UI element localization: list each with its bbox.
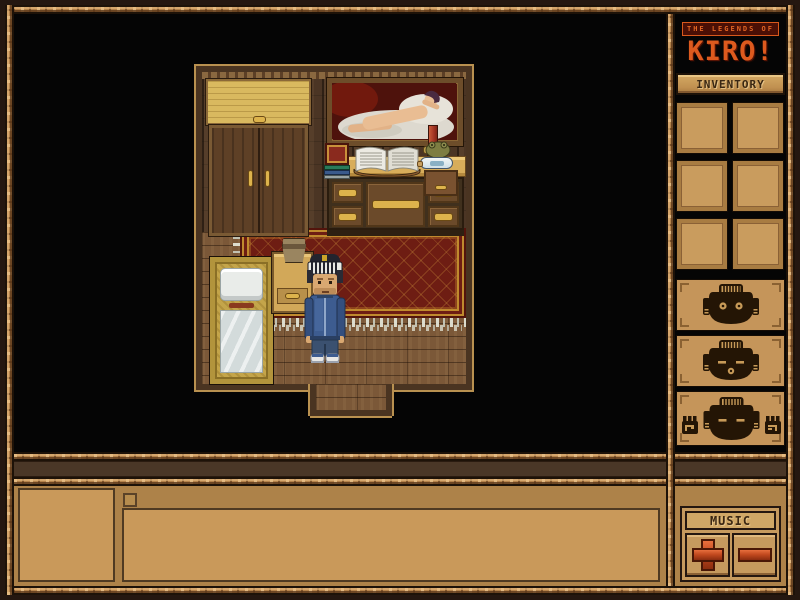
grey-book <box>324 175 350 179</box>
inventory-slot-5[interactable] <box>676 218 728 270</box>
bed <box>210 257 273 384</box>
right-hand <box>765 416 781 434</box>
desk-drawer <box>332 182 363 203</box>
border-top <box>5 5 795 14</box>
ship-in-bottle <box>420 157 453 169</box>
game-window: THE LEGENDS OF KIRO! INVENTORY <box>0 0 800 600</box>
sidebar: THE LEGENDS OF KIRO! INVENTORY <box>675 14 786 452</box>
plus-icon <box>694 541 722 569</box>
nightstand-handle <box>285 293 300 299</box>
open-book <box>352 144 422 178</box>
mask-mouth-icon <box>703 340 759 384</box>
desk-base <box>327 230 464 236</box>
inventory-slot-3[interactable] <box>676 160 728 212</box>
painting-reclining-figure <box>327 78 463 146</box>
left-hand <box>682 416 698 434</box>
wardrobe-seam <box>258 128 260 233</box>
border-bottom <box>5 586 795 595</box>
mask-open-eyes-icon <box>703 284 759 328</box>
inventory-slot-2[interactable] <box>732 102 784 154</box>
mask-button-mouth[interactable] <box>676 335 785 387</box>
desk-drawer-center <box>366 182 425 227</box>
wardrobe <box>206 79 311 236</box>
inventory-slot-4[interactable] <box>732 160 784 212</box>
border-left <box>5 5 14 595</box>
auto-advance-checkbox[interactable] <box>123 493 137 507</box>
mask-button-eyes[interactable] <box>676 279 785 331</box>
inventory-slot-1[interactable] <box>676 102 728 154</box>
bed-pillow <box>220 268 263 301</box>
music-panel: MUSIC <box>680 506 781 582</box>
sidebar-bottom: MUSIC <box>675 486 786 586</box>
desk-drawer <box>428 206 459 227</box>
rug-fringe-bottom2 <box>244 325 462 331</box>
sidebar-divider <box>666 14 675 586</box>
logo-subtitle: THE LEGENDS OF <box>682 22 779 36</box>
bed-fold <box>229 303 254 308</box>
wardrobe-handle-right <box>265 170 270 187</box>
wardrobe-doors <box>209 125 308 236</box>
music-volume-up-button[interactable] <box>685 533 730 577</box>
portrait-box <box>18 488 115 582</box>
player-character <box>303 252 347 364</box>
desk-drawer <box>332 206 363 227</box>
inventory-slot-6[interactable] <box>732 218 784 270</box>
bottom-bar <box>14 486 666 586</box>
red-book <box>325 143 349 165</box>
music-volume-down-button[interactable] <box>732 533 777 577</box>
bed-blanket <box>220 310 263 373</box>
logo-title: KIRO! <box>687 38 773 65</box>
music-label: MUSIC <box>685 511 776 530</box>
small-drawer-box <box>424 170 458 196</box>
wardrobe-keyplate <box>253 116 266 123</box>
bottle-cork <box>417 161 423 167</box>
bottle-ship <box>430 161 444 166</box>
message-text-area[interactable] <box>122 508 660 582</box>
minus-icon <box>740 550 770 560</box>
wardrobe-top <box>206 79 311 125</box>
mask-hands-icon <box>680 397 783 444</box>
figurine <box>425 138 451 158</box>
inventory-header: INVENTORY <box>676 73 785 95</box>
doorway <box>310 384 392 416</box>
mask-button-hands[interactable] <box>676 391 785 446</box>
border-right <box>786 5 795 595</box>
logo: THE LEGENDS OF KIRO! <box>675 14 786 72</box>
game-viewport[interactable] <box>14 14 666 452</box>
room <box>196 66 472 390</box>
wardrobe-handle-left <box>248 170 253 187</box>
